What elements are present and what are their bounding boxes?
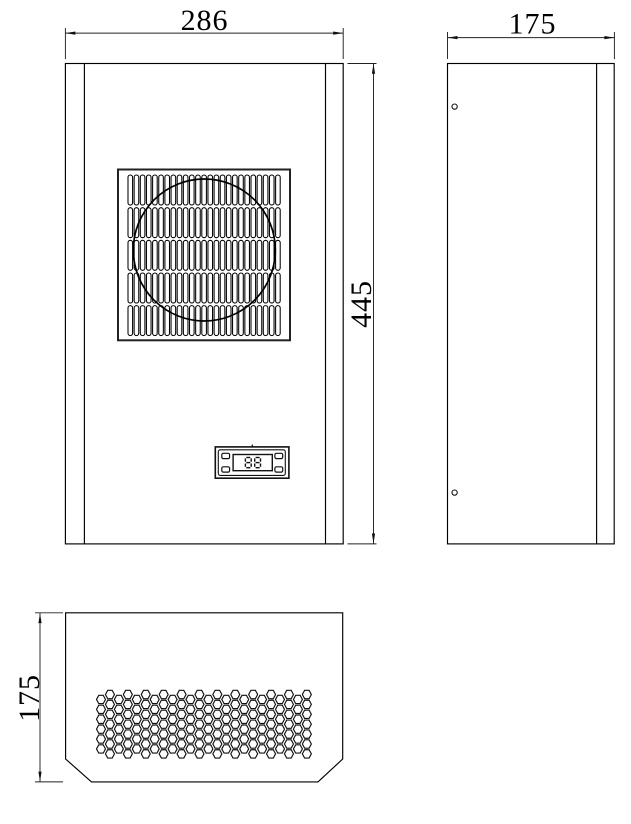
svg-text:175: 175 (13, 674, 46, 722)
svg-text:286: 286 (181, 4, 229, 37)
svg-text:445: 445 (345, 280, 378, 328)
svg-text:175: 175 (509, 7, 557, 40)
